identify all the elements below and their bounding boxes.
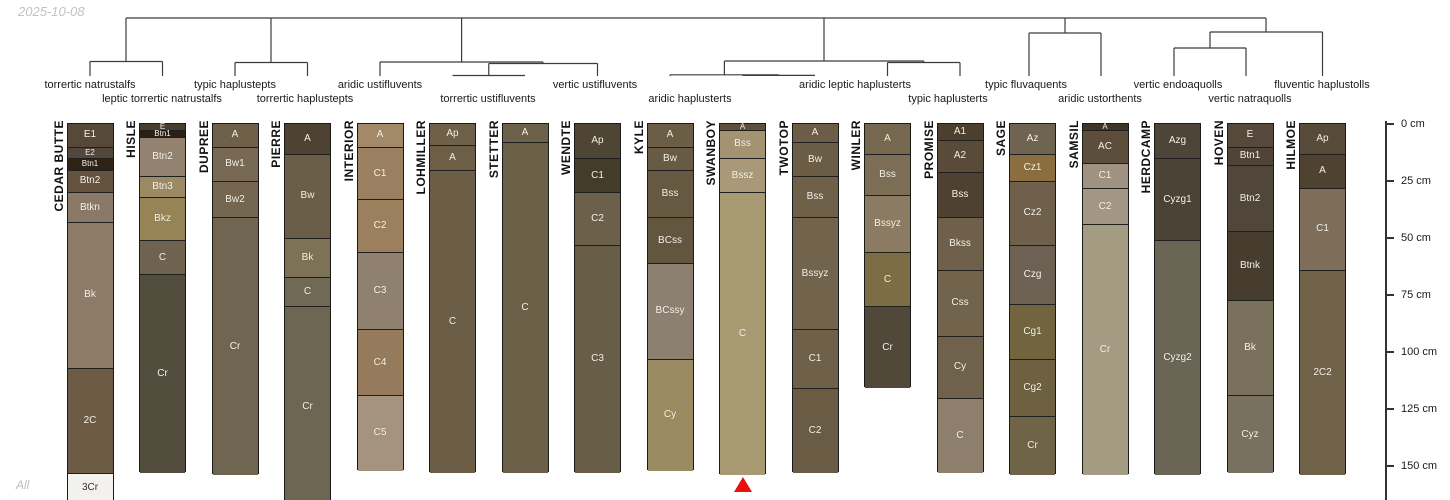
horizon-band: C bbox=[865, 252, 910, 307]
taxa-label: aridic haplusterts bbox=[648, 93, 731, 105]
horizon-label: AC bbox=[1098, 142, 1112, 152]
horizon-band: Bw bbox=[793, 142, 838, 176]
horizon-label: Cg1 bbox=[1023, 327, 1041, 337]
horizon-label: Bk bbox=[1244, 343, 1256, 353]
horizon-band: Bss bbox=[648, 170, 693, 218]
profile-samsil: AACC1C2Cr bbox=[1082, 123, 1129, 474]
horizon-band: Btnk bbox=[1228, 231, 1273, 299]
horizon-band: 3Cr bbox=[68, 473, 113, 500]
horizon-label: Ap bbox=[1316, 134, 1328, 144]
horizon-band: Bk bbox=[285, 238, 330, 277]
horizon-band: Btn1 bbox=[140, 130, 185, 137]
horizon-band: Bssz bbox=[720, 158, 765, 192]
horizon-label: Btn1 bbox=[1240, 151, 1261, 161]
profile-name-text: PIERRE bbox=[269, 120, 283, 168]
horizon-band: C bbox=[938, 398, 983, 473]
horizon-band: BCssy bbox=[648, 263, 693, 359]
horizon-band: C bbox=[285, 277, 330, 307]
horizon-label: Bssyz bbox=[874, 219, 901, 229]
profile-winler: ABssBssyzCCr bbox=[864, 123, 911, 387]
horizon-band: C bbox=[720, 192, 765, 475]
horizon-band: C1 bbox=[1300, 188, 1345, 270]
horizon-band: 2C2 bbox=[1300, 270, 1345, 475]
horizon-label: C3 bbox=[591, 354, 604, 364]
horizon-label: Bw bbox=[301, 191, 315, 201]
horizon-label: E bbox=[1247, 130, 1254, 140]
taxa-label: torrertic natrustalfs bbox=[44, 79, 135, 91]
horizon-band: C5 bbox=[358, 395, 403, 470]
horizon-band: BCss bbox=[648, 217, 693, 263]
horizon-label: A bbox=[667, 130, 674, 140]
horizon-band: A bbox=[865, 124, 910, 154]
horizon-band: Cyzg1 bbox=[1155, 158, 1200, 240]
profile-wendte: ApC1C2C3 bbox=[574, 123, 621, 472]
horizon-label: C bbox=[956, 431, 963, 441]
axis-tick bbox=[1385, 351, 1394, 353]
horizon-band: Cz2 bbox=[1010, 181, 1055, 245]
horizon-label: C5 bbox=[374, 428, 387, 438]
axis-tick-label: 50 cm bbox=[1401, 232, 1431, 244]
horizon-label: Cz2 bbox=[1024, 208, 1042, 218]
profile-hisle: EBtn1Btn2Btn3BkzCCr bbox=[139, 123, 186, 472]
horizon-band: A bbox=[1300, 154, 1345, 188]
horizon-band: 2C bbox=[68, 368, 113, 473]
horizon-label: C bbox=[304, 287, 311, 297]
axis-line bbox=[1385, 121, 1387, 500]
horizon-band: Bss bbox=[865, 154, 910, 195]
horizon-band: C1 bbox=[793, 329, 838, 388]
taxa-label: vertic natraquolls bbox=[1208, 93, 1291, 105]
horizon-label: Btn2 bbox=[80, 176, 101, 186]
horizon-label: Cyz bbox=[1241, 430, 1258, 440]
horizon-band: Azg bbox=[1155, 124, 1200, 158]
horizon-band: C bbox=[140, 240, 185, 274]
horizon-band: A bbox=[503, 124, 548, 142]
horizon-label: E1 bbox=[84, 130, 96, 140]
horizon-band: Az bbox=[1010, 124, 1055, 154]
profile-name-text: TWOTOP bbox=[777, 120, 791, 175]
axis-tick-label: 125 cm bbox=[1401, 403, 1437, 415]
horizon-label: 2C bbox=[84, 416, 97, 426]
horizon-label: Bss bbox=[879, 170, 896, 180]
horizon-label: C2 bbox=[1099, 202, 1112, 212]
horizon-band: Cyz bbox=[1228, 395, 1273, 473]
profile-name-text: HERDCAMP bbox=[1139, 120, 1153, 193]
profile-name-text: LOHMILLER bbox=[414, 120, 428, 195]
horizon-label: Cr bbox=[1100, 345, 1111, 355]
horizon-label: C1 bbox=[591, 171, 604, 181]
profile-name-text: HOVEN bbox=[1212, 120, 1226, 165]
soil-profile-dendrogram-figure: 2025-10-08 torrertic natrustalfsleptic t… bbox=[0, 0, 1450, 500]
profile-name-text: WINLER bbox=[849, 120, 863, 170]
horizon-band: Bk bbox=[1228, 300, 1273, 396]
axis-tick bbox=[1385, 294, 1394, 296]
profile-name-text: INTERIOR bbox=[342, 120, 356, 181]
profile-promise: A1A2BssBkssCssCyC bbox=[937, 123, 984, 472]
horizon-label: Cr bbox=[882, 343, 893, 353]
horizon-label: A bbox=[232, 130, 239, 140]
horizon-band: Bw bbox=[648, 147, 693, 170]
horizon-label: C1 bbox=[1316, 224, 1329, 234]
horizon-label: C bbox=[521, 303, 528, 313]
corner-label: All bbox=[16, 478, 29, 492]
horizon-label: C bbox=[739, 329, 746, 339]
horizon-band: Ap bbox=[430, 124, 475, 145]
horizon-band: C2 bbox=[575, 192, 620, 244]
horizon-label: Czg bbox=[1024, 270, 1042, 280]
horizon-band: C1 bbox=[575, 158, 620, 192]
horizon-label: C1 bbox=[809, 354, 822, 364]
axis-tick bbox=[1385, 180, 1394, 182]
horizon-band: Cy bbox=[938, 336, 983, 398]
profile-pierre: ABwBkCCr bbox=[284, 123, 331, 500]
taxa-label: vertic ustifluvents bbox=[553, 79, 637, 91]
horizon-band: A1 bbox=[938, 124, 983, 140]
taxa-label: typic haplustepts bbox=[194, 79, 276, 91]
horizon-label: E2 bbox=[85, 149, 95, 157]
horizon-band: C1 bbox=[358, 147, 403, 199]
horizon-label: Bssyz bbox=[802, 269, 829, 279]
horizon-label: Cz1 bbox=[1024, 163, 1042, 173]
profile-name-text: SAMSIL bbox=[1067, 120, 1081, 168]
profile-name-text: HISLE bbox=[124, 120, 138, 158]
horizon-label: Bss bbox=[807, 192, 824, 202]
horizon-band: Cr bbox=[285, 306, 330, 500]
horizon-label: Cr bbox=[157, 369, 168, 379]
horizon-band: Bssyz bbox=[793, 217, 838, 329]
horizon-band: A bbox=[213, 124, 258, 147]
horizon-label: C4 bbox=[374, 358, 387, 368]
horizon-label: C1 bbox=[374, 169, 387, 179]
horizon-band: Bw2 bbox=[213, 181, 258, 217]
horizon-band: C4 bbox=[358, 329, 403, 395]
horizon-label: C2 bbox=[374, 221, 387, 231]
horizon-band: C2 bbox=[1083, 188, 1128, 224]
horizon-label: Bw bbox=[663, 154, 677, 164]
horizon-label: Cyzg1 bbox=[1163, 195, 1191, 205]
horizon-label: C bbox=[449, 317, 456, 327]
horizon-label: Bss bbox=[662, 189, 679, 199]
axis-tick bbox=[1385, 123, 1394, 125]
profile-name-text: SWANBOY bbox=[704, 120, 718, 186]
profile-dupree: ABw1Bw2Cr bbox=[212, 123, 259, 474]
horizon-band: Cr bbox=[1083, 224, 1128, 475]
horizon-band: AC bbox=[1083, 130, 1128, 163]
horizon-band: Czg bbox=[1010, 245, 1055, 304]
profile-hoven: EBtn1Btn2BtnkBkCyz bbox=[1227, 123, 1274, 472]
horizon-band: A bbox=[358, 124, 403, 147]
profile-hilmoe: ApAC12C2 bbox=[1299, 123, 1346, 474]
horizon-label: Bkss bbox=[949, 239, 971, 249]
horizon-band: C3 bbox=[575, 245, 620, 473]
horizon-band: C bbox=[430, 170, 475, 473]
horizon-band: Btn1 bbox=[68, 158, 113, 169]
horizon-label: A bbox=[377, 130, 384, 140]
horizon-band: Bss bbox=[938, 172, 983, 218]
horizon-band: Bk bbox=[68, 222, 113, 368]
horizon-band: Btn2 bbox=[1228, 165, 1273, 231]
profile-name-text: STETTER bbox=[487, 120, 501, 178]
horizon-band: Bw bbox=[285, 154, 330, 238]
horizon-label: Btn2 bbox=[1240, 194, 1261, 204]
horizon-band: Cg2 bbox=[1010, 359, 1055, 416]
horizon-band: Css bbox=[938, 270, 983, 336]
axis-tick-label: 0 cm bbox=[1401, 118, 1425, 130]
profile-name-text: DUPREE bbox=[197, 120, 211, 173]
horizon-band: Cr bbox=[865, 306, 910, 388]
taxa-label: torrertic ustifluvents bbox=[440, 93, 535, 105]
horizon-band: Cyzg2 bbox=[1155, 240, 1200, 475]
profile-name-text: SAGE bbox=[994, 120, 1008, 156]
horizon-band: E2 bbox=[68, 147, 113, 158]
horizon-label: C bbox=[159, 253, 166, 263]
profile-name-text: HILMOE bbox=[1284, 120, 1298, 170]
taxa-label: aridic ustifluvents bbox=[338, 79, 422, 91]
horizon-label: Btkn bbox=[80, 203, 100, 213]
horizon-band: A bbox=[648, 124, 693, 147]
horizon-band: Bssyz bbox=[865, 195, 910, 252]
horizon-band: Ap bbox=[575, 124, 620, 158]
horizon-band: E1 bbox=[68, 124, 113, 147]
horizon-label: A bbox=[522, 128, 529, 138]
horizon-band: C bbox=[503, 142, 548, 473]
horizon-band: Bkss bbox=[938, 217, 983, 269]
axis-tick bbox=[1385, 237, 1394, 239]
horizon-label: BCssy bbox=[656, 306, 685, 316]
profile-name-text: PROMISE bbox=[922, 120, 936, 179]
horizon-label: 3Cr bbox=[82, 483, 98, 493]
horizon-band: A bbox=[285, 124, 330, 154]
horizon-band: Cg1 bbox=[1010, 304, 1055, 359]
horizon-label: Bss bbox=[952, 190, 969, 200]
horizon-band: A2 bbox=[938, 140, 983, 172]
horizon-label: 2C2 bbox=[1313, 368, 1331, 378]
horizon-label: C2 bbox=[591, 214, 604, 224]
horizon-label: Cyzg2 bbox=[1163, 353, 1191, 363]
horizon-label: A bbox=[449, 153, 456, 163]
horizon-label: Css bbox=[951, 298, 968, 308]
horizon-band: Btn2 bbox=[68, 170, 113, 193]
horizon-band: A bbox=[430, 145, 475, 170]
profile-stetter: AC bbox=[502, 123, 549, 472]
horizon-band: Btn3 bbox=[140, 176, 185, 197]
horizon-band: Cz1 bbox=[1010, 154, 1055, 181]
horizon-label: C bbox=[884, 275, 891, 285]
horizon-label: Cg2 bbox=[1023, 383, 1041, 393]
horizon-label: Cy bbox=[954, 362, 966, 372]
taxa-label: fluventic haplustolls bbox=[1274, 79, 1369, 91]
horizon-label: Ap bbox=[591, 136, 603, 146]
horizon-label: C1 bbox=[1099, 171, 1112, 181]
axis-tick-label: 100 cm bbox=[1401, 346, 1437, 358]
horizon-band: Ap bbox=[1300, 124, 1345, 154]
horizon-band: Bw1 bbox=[213, 147, 258, 181]
profile-name-text: KYLE bbox=[632, 120, 646, 154]
horizon-band: Cy bbox=[648, 359, 693, 471]
horizon-band: Btkn bbox=[68, 192, 113, 222]
profile-sage: AzCz1Cz2CzgCg1Cg2Cr bbox=[1009, 123, 1056, 474]
horizon-label: Bw2 bbox=[225, 195, 244, 205]
horizon-label: C2 bbox=[809, 426, 822, 436]
profile-interior: AC1C2C3C4C5 bbox=[357, 123, 404, 470]
profile-name-text: WENDTE bbox=[559, 120, 573, 175]
taxa-label: leptic torrertic natrustalfs bbox=[102, 93, 222, 105]
horizon-band: Cr bbox=[140, 274, 185, 472]
horizon-label: BCss bbox=[658, 236, 682, 246]
horizon-label: Cr bbox=[1027, 441, 1038, 451]
horizon-label: A bbox=[1319, 166, 1326, 176]
profile-cedar-butte: E1E2Btn1Btn2BtknBk2C3Cr bbox=[67, 123, 114, 500]
taxa-label: aridic ustorthents bbox=[1058, 93, 1142, 105]
horizon-band: Cr bbox=[213, 217, 258, 475]
horizon-label: C3 bbox=[374, 286, 387, 296]
axis-tick-label: 75 cm bbox=[1401, 289, 1431, 301]
horizon-label: Bkz bbox=[154, 214, 171, 224]
horizon-label: Btn3 bbox=[152, 182, 173, 192]
horizon-band: Bkz bbox=[140, 197, 185, 240]
horizon-band: Bss bbox=[793, 176, 838, 217]
profile-name-text: CEDAR BUTTE bbox=[52, 120, 66, 212]
horizon-band: C1 bbox=[1083, 163, 1128, 188]
axis-tick-label: 25 cm bbox=[1401, 175, 1431, 187]
horizon-label: Azg bbox=[1169, 136, 1186, 146]
profile-kyle: ABwBssBCssBCssyCy bbox=[647, 123, 694, 470]
horizon-label: Bw1 bbox=[225, 159, 244, 169]
horizon-label: Ap bbox=[446, 129, 458, 139]
profile-swanboy: ABssBsszC bbox=[719, 123, 766, 474]
taxa-label: torrertic haplustepts bbox=[257, 93, 354, 105]
horizon-label: Btnk bbox=[1240, 261, 1260, 271]
horizon-label: A bbox=[304, 134, 311, 144]
horizon-label: Bw bbox=[808, 155, 822, 165]
horizon-label: Btn1 bbox=[82, 160, 98, 168]
axis-tick bbox=[1385, 465, 1394, 467]
horizon-band: C2 bbox=[358, 199, 403, 251]
taxa-label: typic haplusterts bbox=[908, 93, 987, 105]
horizon-label: A bbox=[812, 128, 819, 138]
horizon-label: A2 bbox=[954, 151, 966, 161]
horizon-label: Btn2 bbox=[152, 152, 173, 162]
profile-herdcamp: AzgCyzg1Cyzg2 bbox=[1154, 123, 1201, 474]
taxa-label: vertic endoaquolls bbox=[1134, 79, 1223, 91]
horizon-label: Cy bbox=[664, 410, 676, 420]
horizon-label: Bk bbox=[302, 253, 314, 263]
horizon-label: A1 bbox=[954, 127, 966, 137]
profile-twotop: ABwBssBssyzC1C2 bbox=[792, 123, 839, 472]
horizon-label: Az bbox=[1027, 134, 1039, 144]
horizon-label: Cr bbox=[230, 342, 241, 352]
horizon-band: E bbox=[1228, 124, 1273, 147]
axis-tick-label: 150 cm bbox=[1401, 460, 1437, 472]
horizon-band: Btn1 bbox=[1228, 147, 1273, 165]
red-triangle-marker bbox=[734, 477, 752, 492]
horizon-label: A bbox=[884, 134, 891, 144]
horizon-label: Bssz bbox=[732, 171, 754, 181]
horizon-label: Bss bbox=[734, 139, 751, 149]
horizon-band: A bbox=[793, 124, 838, 142]
taxa-label: aridic leptic haplusterts bbox=[799, 79, 911, 91]
taxa-label: typic fluvaquents bbox=[985, 79, 1067, 91]
horizon-band: C3 bbox=[358, 252, 403, 330]
profile-lohmiller: ApAC bbox=[429, 123, 476, 472]
horizon-band: Btn2 bbox=[140, 137, 185, 177]
horizon-band: Bss bbox=[720, 130, 765, 159]
horizon-band: C2 bbox=[793, 388, 838, 472]
horizon-band: Cr bbox=[1010, 416, 1055, 475]
axis-tick bbox=[1385, 408, 1394, 410]
horizon-label: Cr bbox=[302, 402, 313, 412]
horizon-label: Bk bbox=[84, 290, 96, 300]
